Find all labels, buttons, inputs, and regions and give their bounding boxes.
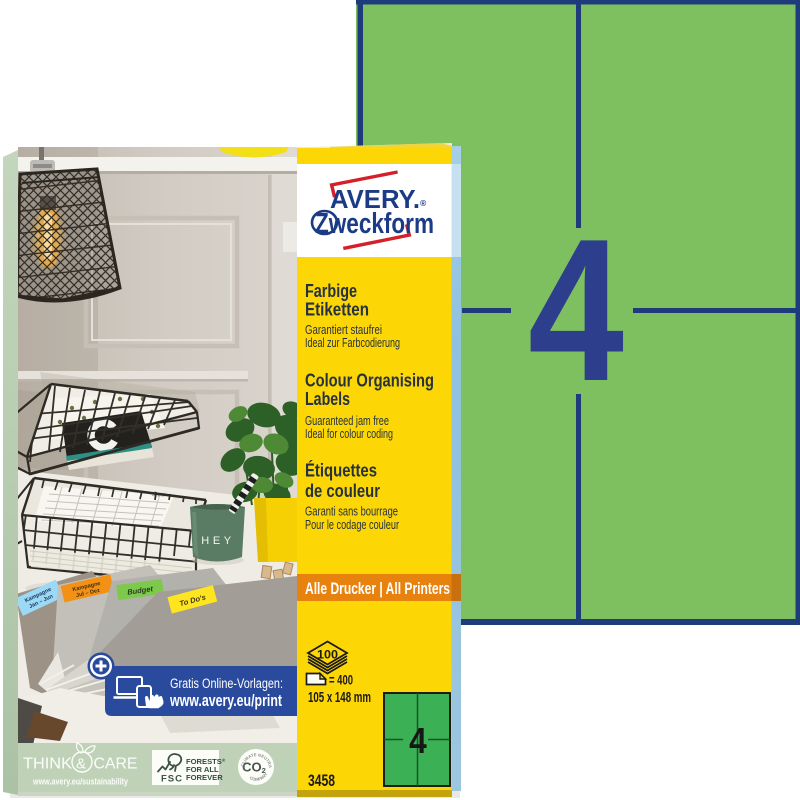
svg-text:FOREVER: FOREVER [186,773,223,782]
svg-text:100: 100 [317,648,338,662]
svg-text:Garantiert staufrei: Garantiert staufrei [305,323,382,337]
svg-text:Ideal for colour coding: Ideal for colour coding [305,427,393,441]
svg-text:FSC: FSC [161,774,183,785]
svg-text:®: ® [420,198,427,208]
svg-text:= 400: = 400 [329,672,353,688]
svg-text:3458: 3458 [308,771,335,790]
svg-text:www.avery.eu/print: www.avery.eu/print [169,692,282,710]
svg-text:Labels: Labels [305,388,350,409]
svg-text:105 x 148 mm: 105 x 148 mm [308,690,371,706]
svg-text:Gratis Online-Vorlagen:: Gratis Online-Vorlagen: [170,676,283,691]
svg-text:Zweckform: Zweckform [315,208,434,240]
svg-text:www.avery.eu/sustainability: www.avery.eu/sustainability [32,777,128,787]
svg-text:THINK: THINK [23,756,72,773]
svg-text:de couleur: de couleur [305,480,380,501]
svg-text:&: & [76,756,86,773]
svg-text:Guaranteed jam free: Guaranteed jam free [305,414,389,428]
svg-text:4: 4 [528,196,624,423]
svg-text:Pour le codage couleur: Pour le codage couleur [305,518,399,532]
svg-text:Étiquettes: Étiquettes [305,459,377,480]
svg-text:Etiketten: Etiketten [305,299,369,320]
svg-text:Alle Drucker | All Printers: Alle Drucker | All Printers [305,580,450,598]
svg-text:Ideal zur Farbcodierung: Ideal zur Farbcodierung [305,336,400,350]
svg-text:Garanti sans bourrage: Garanti sans bourrage [305,505,398,519]
svg-text:CARE: CARE [94,756,138,773]
svg-text:HEY: HEY [201,535,234,547]
svg-text:4: 4 [409,721,427,761]
